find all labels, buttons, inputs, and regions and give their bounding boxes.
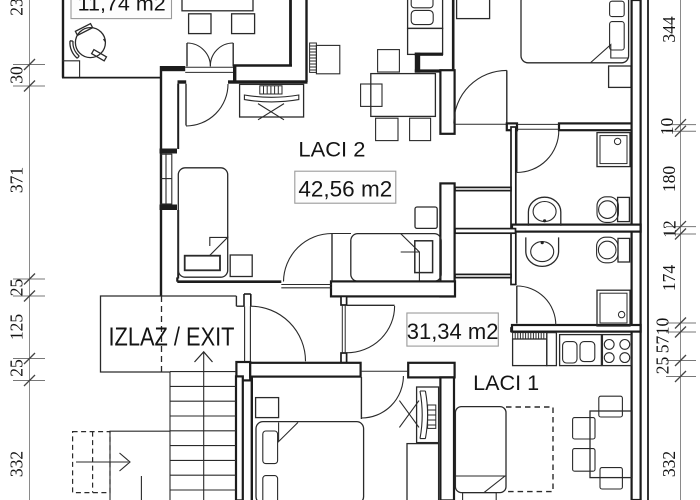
svg-text:332: 332 [659, 451, 679, 477]
svg-text:332: 332 [7, 451, 27, 477]
svg-text:31,34 m2: 31,34 m2 [407, 319, 499, 344]
svg-text:57: 57 [653, 336, 673, 354]
svg-text:12: 12 [660, 220, 680, 238]
svg-text:10: 10 [653, 318, 673, 336]
svg-text:11,74 m2: 11,74 m2 [78, 0, 166, 16]
svg-text:23: 23 [7, 0, 27, 16]
svg-text:25: 25 [653, 357, 673, 375]
svg-text:30: 30 [7, 66, 27, 84]
svg-text:LACI 2: LACI 2 [298, 139, 365, 162]
svg-text:10: 10 [657, 118, 677, 136]
svg-text:25: 25 [7, 359, 27, 377]
svg-text:180: 180 [659, 166, 679, 193]
svg-text:371: 371 [7, 167, 27, 193]
svg-text:LACI 1: LACI 1 [473, 372, 539, 395]
svg-text:125: 125 [7, 314, 27, 341]
svg-text:174: 174 [659, 265, 679, 292]
svg-text:42,56 m2: 42,56 m2 [298, 177, 392, 202]
svg-text:344: 344 [659, 16, 679, 43]
svg-text:25: 25 [7, 279, 27, 297]
svg-text:IZLAZ / EXIT: IZLAZ / EXIT [109, 322, 235, 352]
